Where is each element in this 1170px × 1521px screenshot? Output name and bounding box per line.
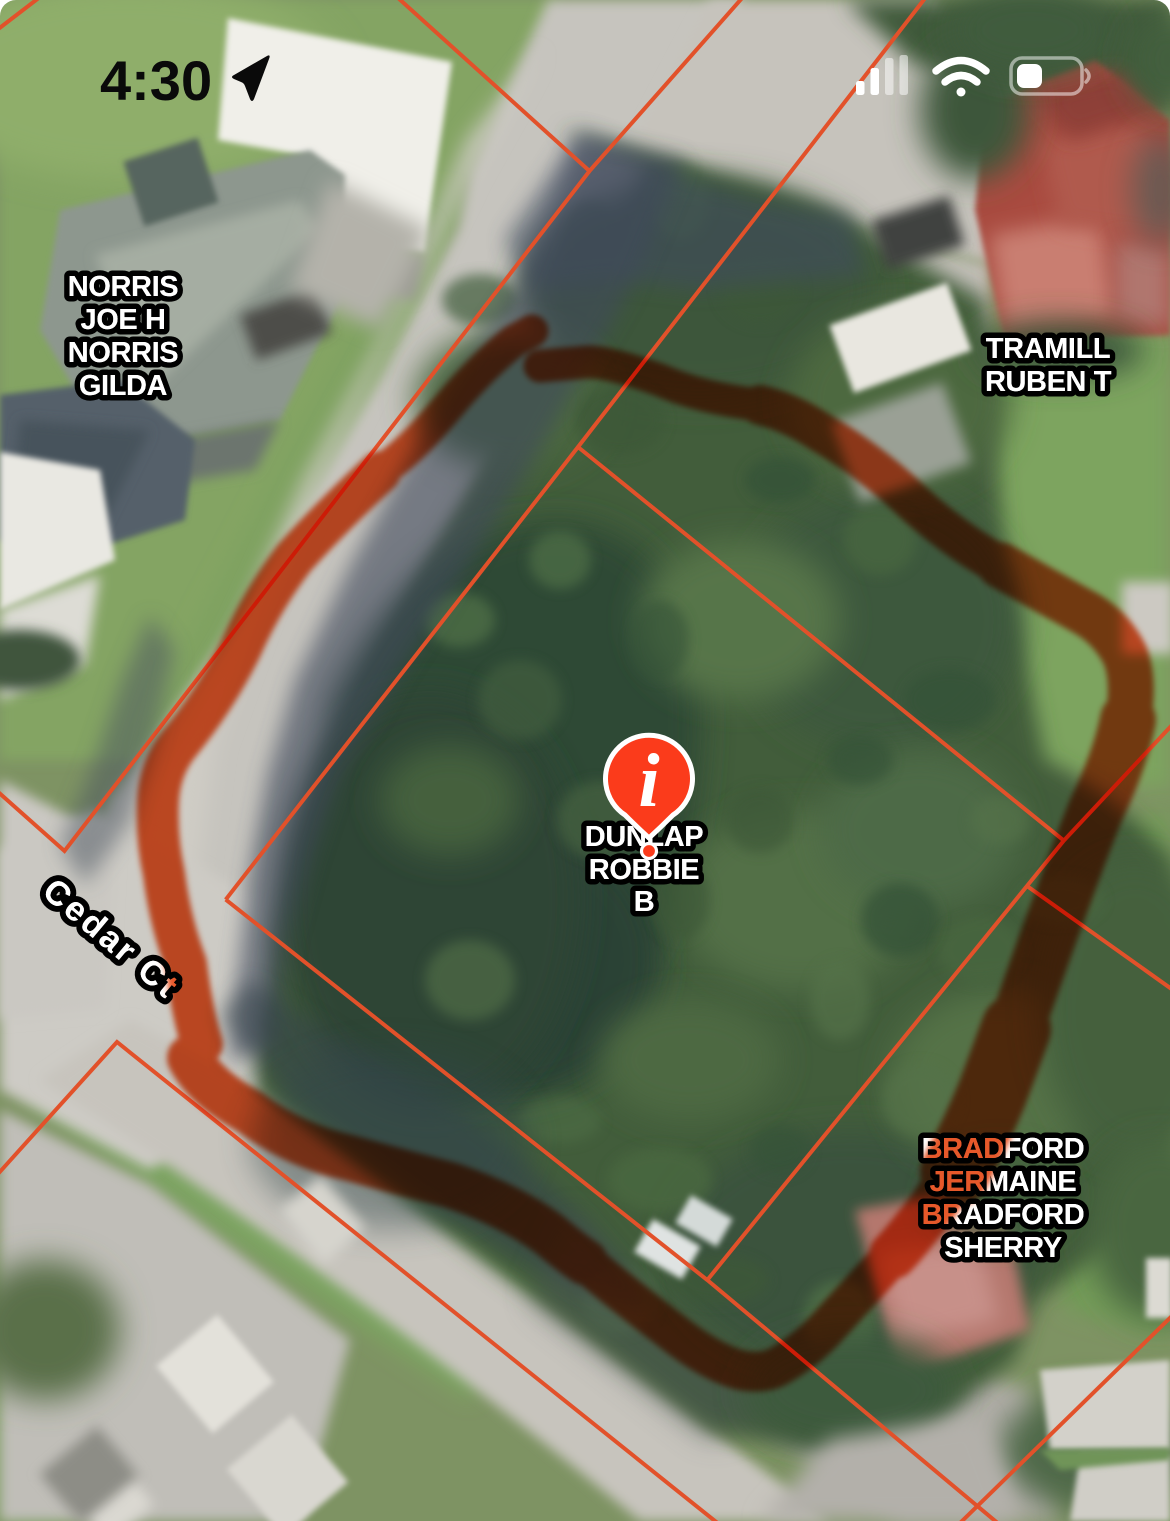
svg-text:i: i (638, 739, 659, 823)
svg-text:4:30: 4:30 (100, 49, 212, 112)
svg-text:B: B (634, 886, 655, 918)
svg-text:SHERRY: SHERRY (944, 1232, 1061, 1264)
svg-text:TRAMILL: TRAMILL (986, 333, 1110, 365)
svg-text:NORRIS: NORRIS (68, 271, 178, 303)
svg-text:ROBBIE: ROBBIE (589, 854, 699, 886)
svg-text:RUBEN T: RUBEN T (985, 366, 1112, 398)
svg-text:JOE H: JOE H (80, 304, 165, 336)
svg-text:GILDA: GILDA (79, 370, 168, 402)
svg-text:NORRIS: NORRIS (68, 337, 178, 369)
